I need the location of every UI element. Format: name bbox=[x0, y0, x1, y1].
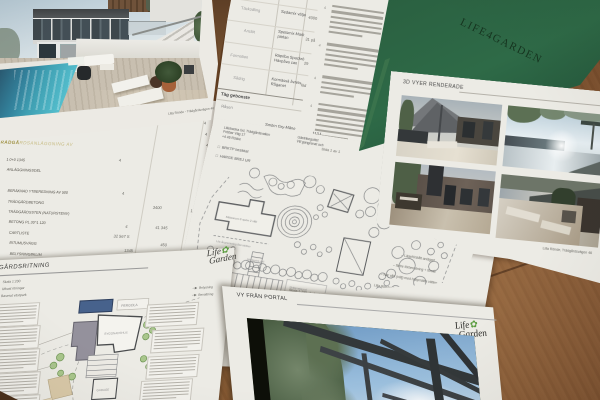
svg-text:GARAGE: GARAGE bbox=[96, 388, 109, 393]
